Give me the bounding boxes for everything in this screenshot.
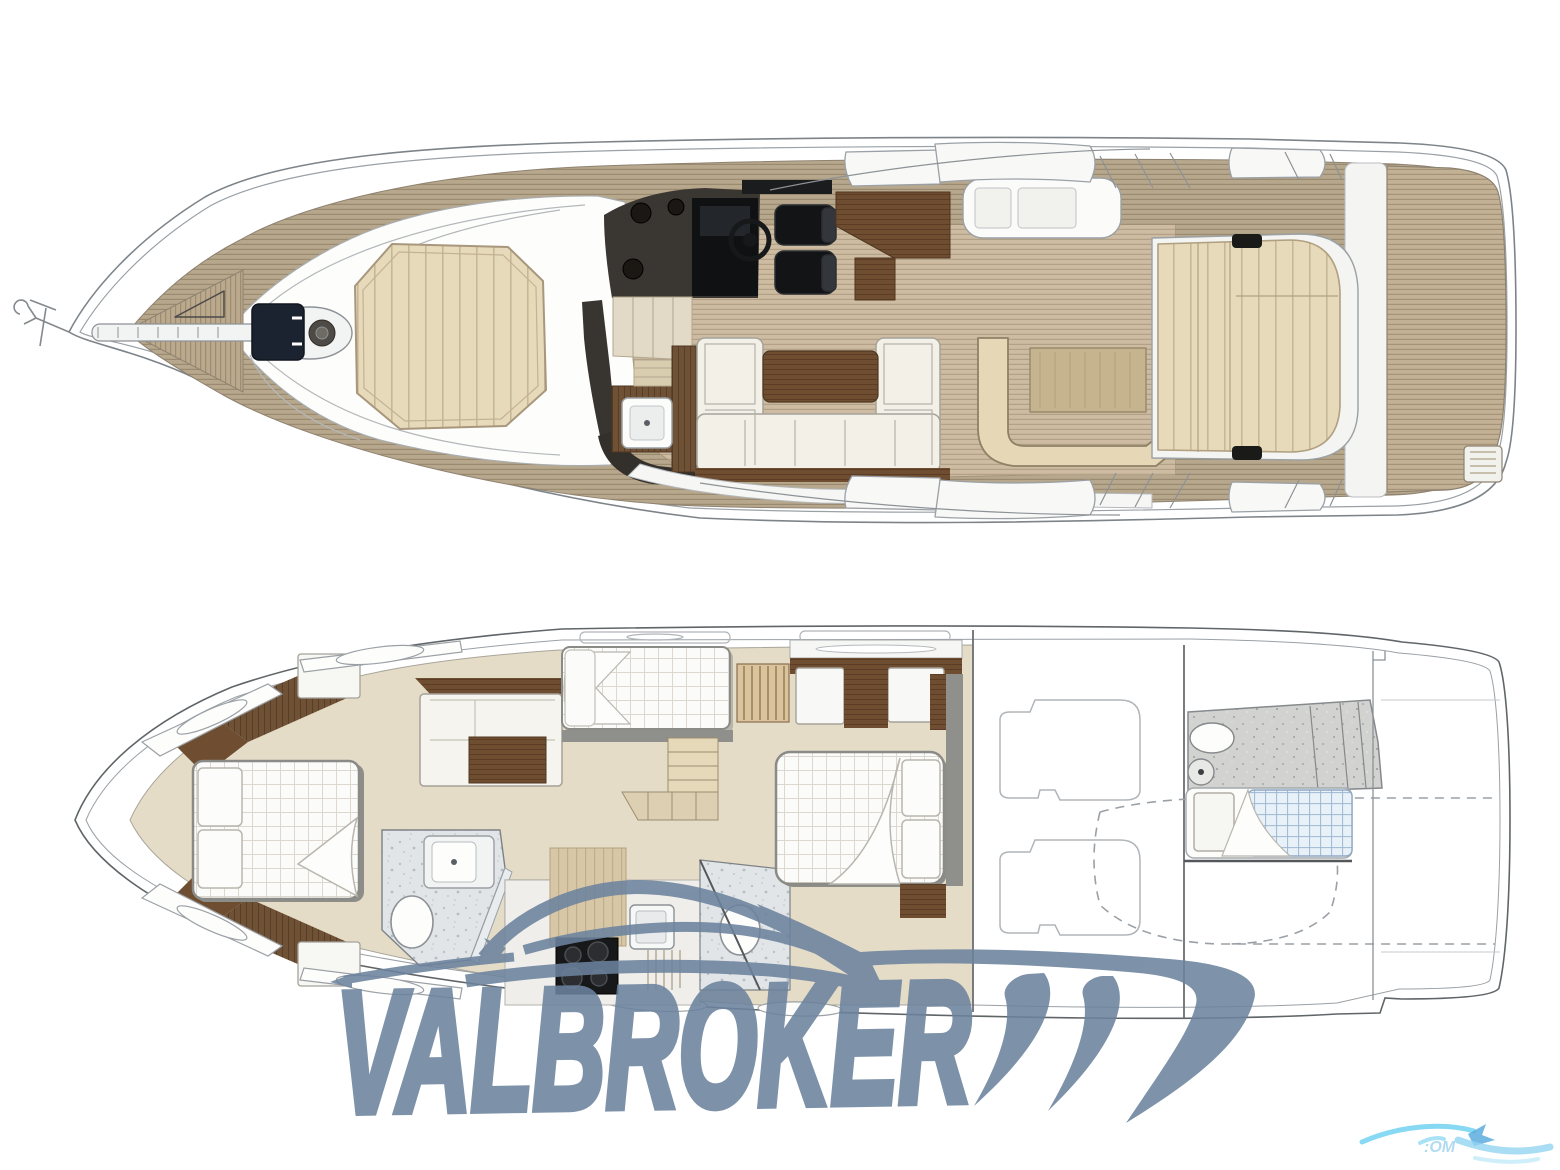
svg-text::OM: :OM [1424, 1139, 1456, 1156]
